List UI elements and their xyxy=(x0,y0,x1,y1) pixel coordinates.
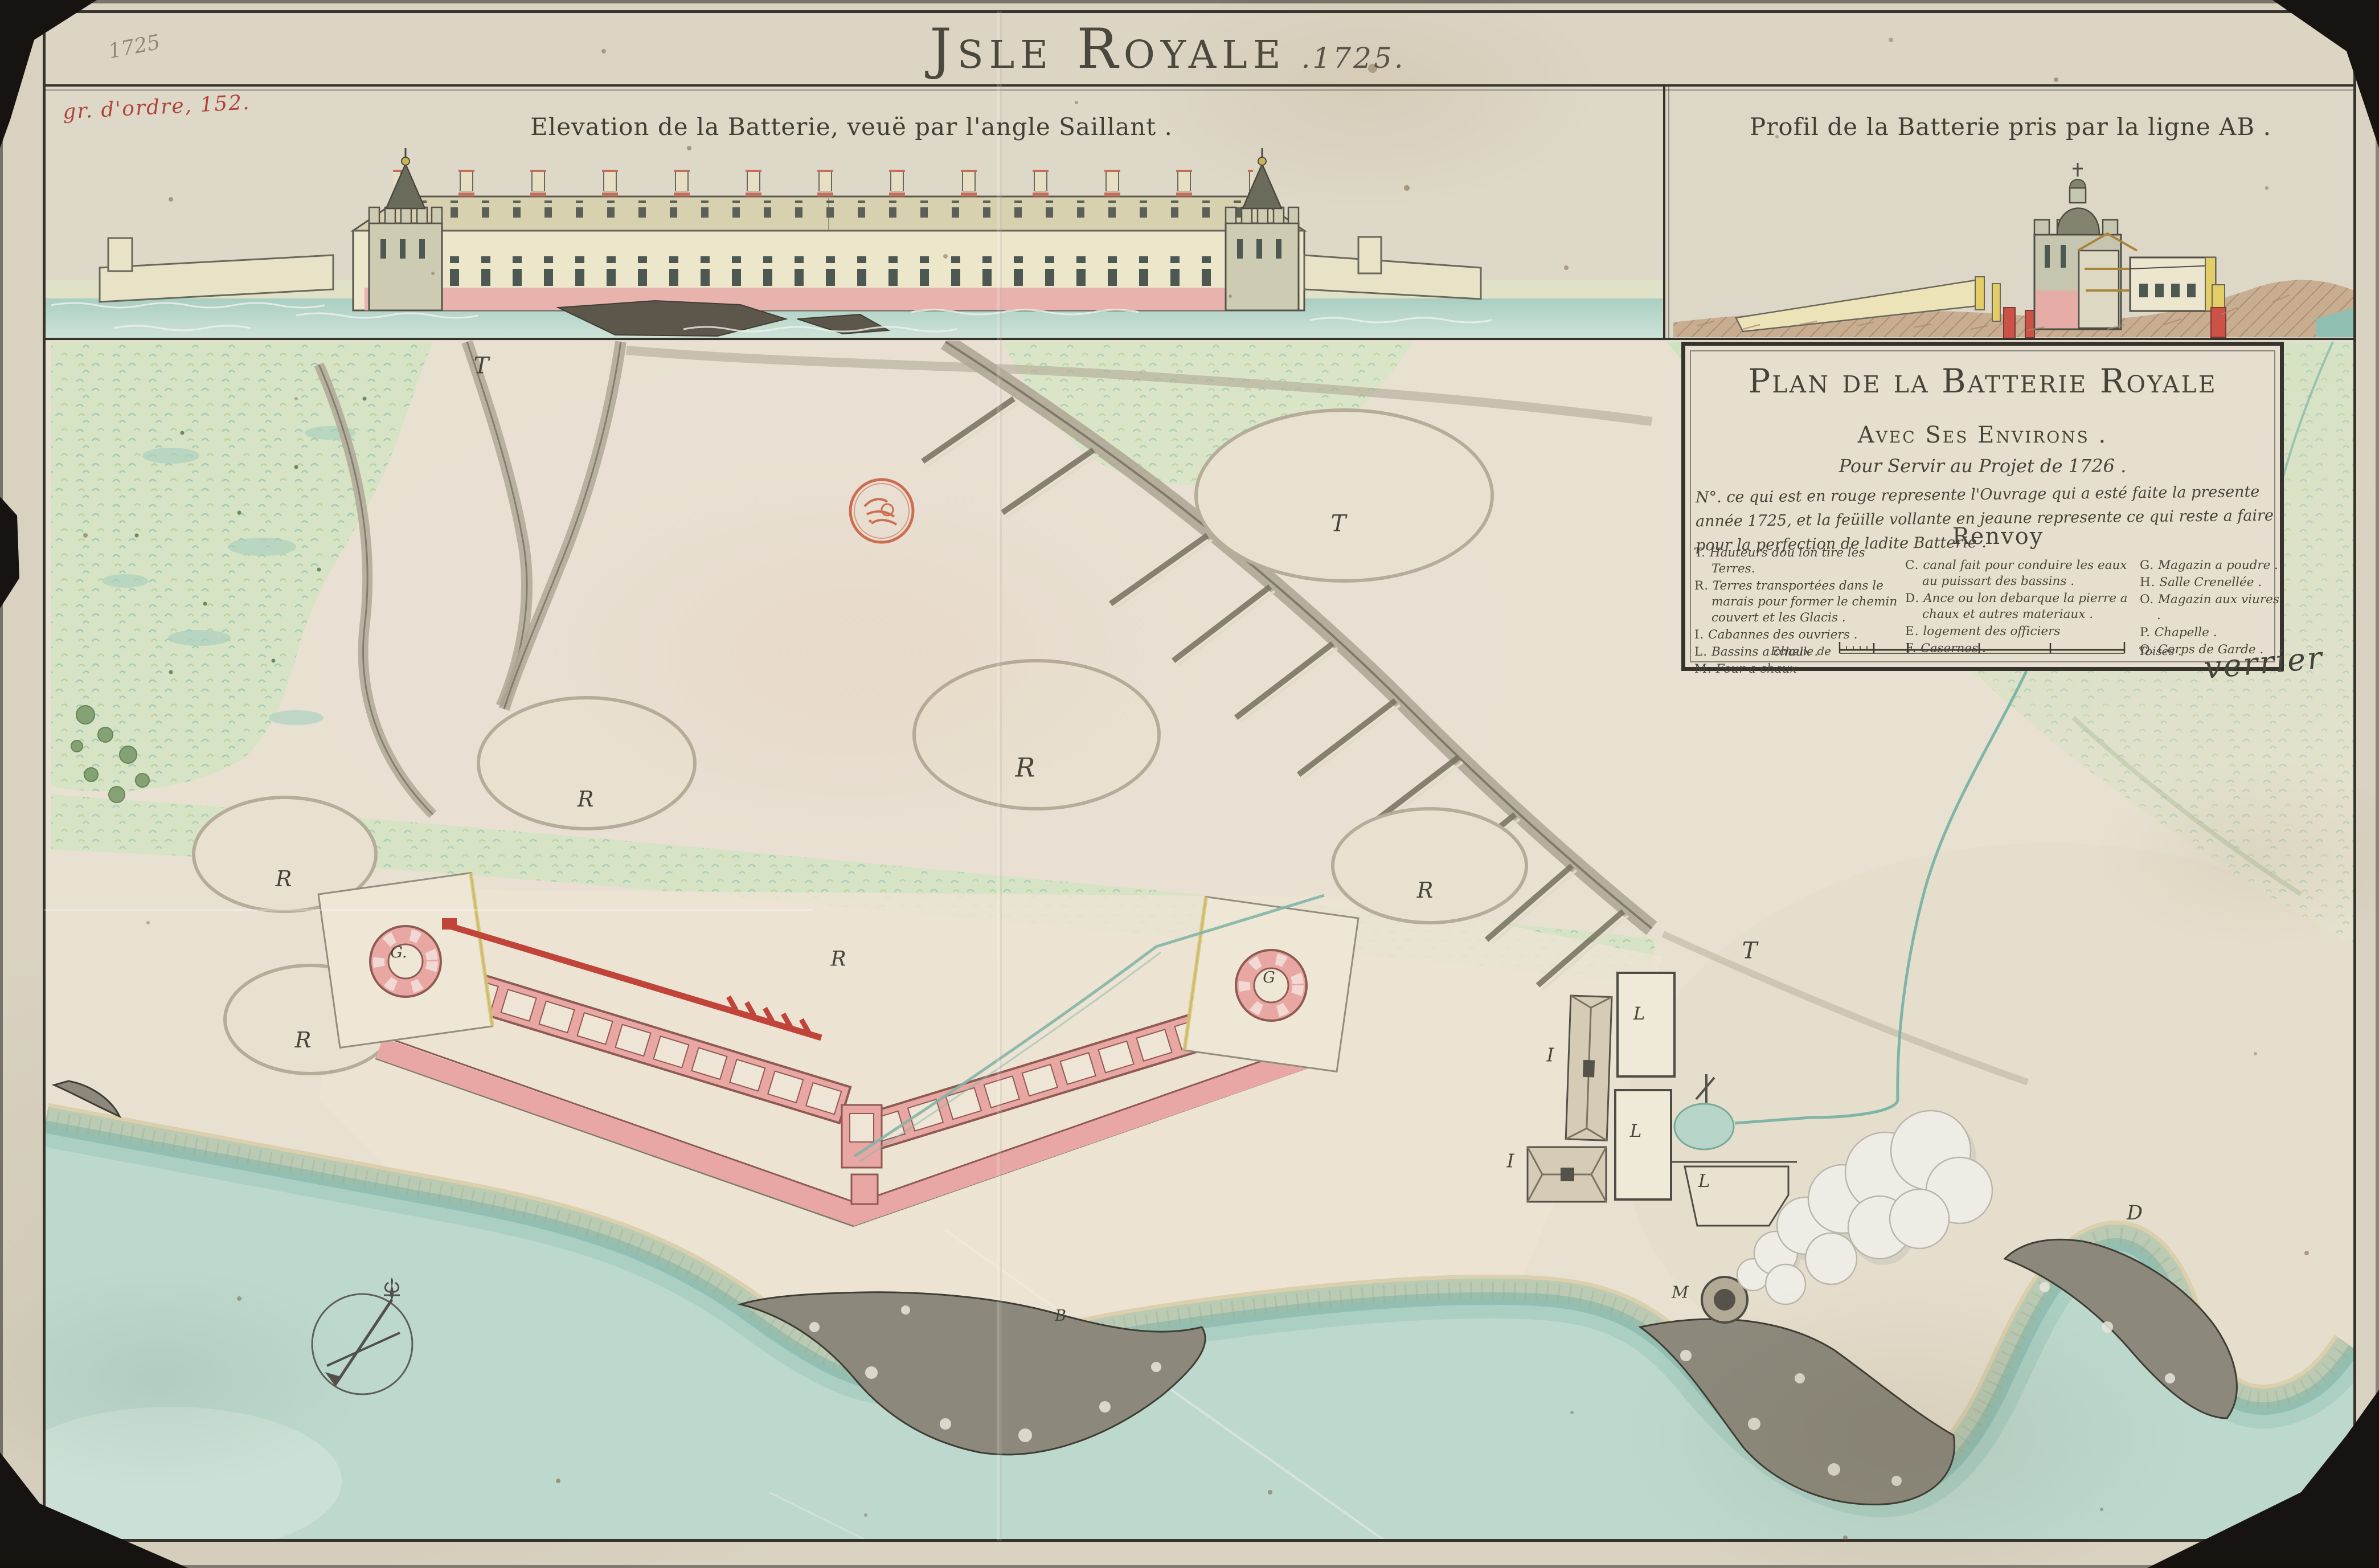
map-artwork xyxy=(0,0,2379,1568)
lime-basin-1 xyxy=(1618,973,1674,1076)
lime-basin-3 xyxy=(1685,1166,1788,1226)
legend-item: M. Four a chaux xyxy=(1694,661,1904,677)
cartouche-project-line: Pour Servir au Projet de 1726 . xyxy=(1685,455,2280,477)
cartouche-subtitle: Avec Ses Environs . xyxy=(1685,422,2280,448)
legend-title: Renvoy xyxy=(1904,523,2092,550)
legend-column-1: T. Hauteurs dou lon tire les Terres.R. T… xyxy=(1694,545,1904,678)
scale-bar: Echelle de Toises . xyxy=(1771,638,2261,658)
legend-item: C. canal fait pour conduire les eaux au … xyxy=(1905,558,2135,589)
workers-cabin-1 xyxy=(1566,996,1612,1140)
scale-bar-graphic xyxy=(1837,638,2133,658)
lime-basin-2 xyxy=(1615,1090,1671,1199)
map-sheet: Jsle Royale.1725. 1725 gr. d'ordre, 152.… xyxy=(0,0,2379,1568)
legend-item: T. Hauteurs dou lon tire les Terres. xyxy=(1694,545,1904,577)
cartouche-title: Plan de la Batterie Royale xyxy=(1685,362,2280,400)
legend-item: G. Magazin a poudre . xyxy=(2140,558,2282,574)
workers-cabin-2 xyxy=(1528,1147,1606,1202)
legend-item: O. Magazin aux viures . xyxy=(2140,592,2282,624)
legend-item: H. Salle Crenellée . xyxy=(2140,575,2282,591)
cartouche-note-line-1: N°. ce qui est en rouge represente l'Ouv… xyxy=(1696,483,2271,507)
legend-item: R. Terres transportées dans le marais po… xyxy=(1694,578,1904,626)
legend-item: D. Ance ou lon debarque la pierre a chau… xyxy=(1905,591,2135,623)
legend-item: E. logement des officiers xyxy=(1905,624,2135,640)
scale-label: Echelle de xyxy=(1771,644,1831,658)
scale-unit: Toises . xyxy=(2139,644,2181,658)
mill-pond xyxy=(1674,1104,1734,1149)
cartouche: Plan de la Batterie Royale Avec Ses Envi… xyxy=(1681,342,2284,671)
